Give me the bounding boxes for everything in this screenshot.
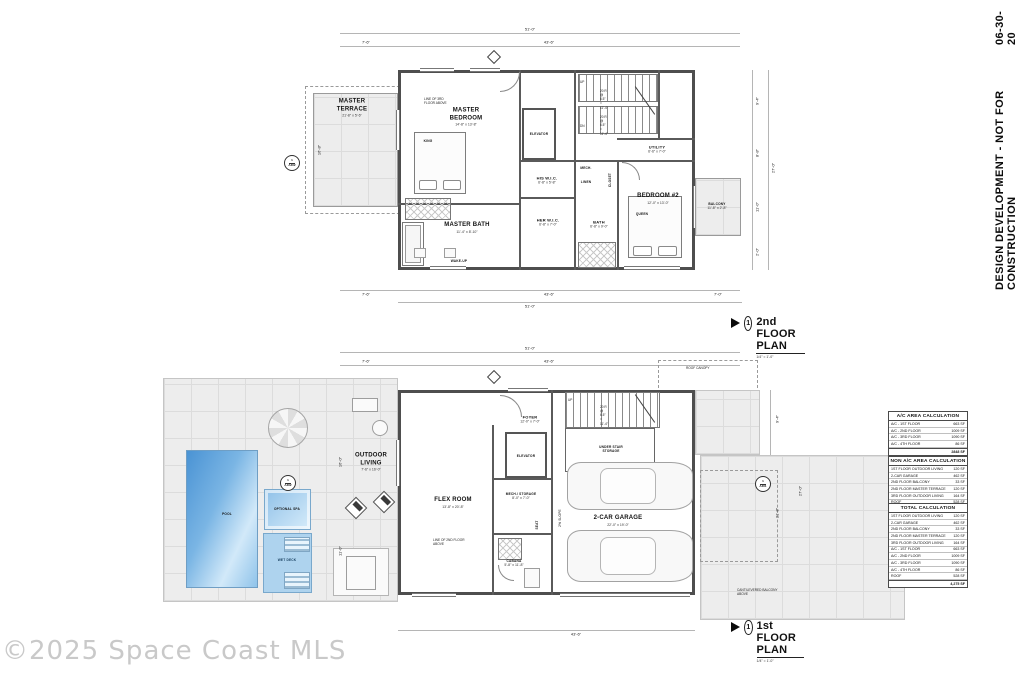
design-development-stamp: DESIGN DEVELOPMENT - NOT FOR CONSTRUCTIO… [994, 8, 1018, 290]
dimension-line [398, 630, 695, 631]
table-row: A/C - 3RD FLOOR1090 SF [889, 434, 967, 441]
detail-number-bubble: 1 [744, 316, 752, 331]
first-floor-plan-title: 1 1st FLOOR PLAN 1/4" = 1'-0" [731, 620, 804, 663]
garage-door [560, 593, 690, 597]
room-label-bath: BATH 6'-8" x 9'-0" [590, 219, 608, 228]
lounge-chair [284, 572, 310, 589]
outdoor-sofa [352, 398, 378, 412]
table-row: A/C - 2ND FLOOR1009 SF [889, 553, 967, 560]
label-king: KING [424, 139, 433, 143]
window [396, 110, 400, 150]
room-label-wet-deck: WET DECK [276, 558, 298, 562]
interior-wall [492, 425, 494, 595]
room-dims: 22'-0" x 19'-0" [594, 523, 643, 527]
table-row: 3RD FLOOR OUTDOOR LIVING164 SF [889, 540, 967, 547]
row-label: 2ND FLOOR BALCONY [891, 480, 930, 484]
stair-run-down [578, 106, 658, 134]
table-title: A/C AREA CALCULATION [889, 412, 967, 421]
interior-wall [574, 160, 576, 270]
interior-wall [617, 138, 695, 140]
room-label-her-wic: HER W.I.C. 6'-8" x 7'-0" [537, 217, 559, 226]
dim-label: 43'-6" [571, 632, 581, 637]
room-dims: 6'-8" x 7'-0" [537, 222, 559, 226]
dimension-line [768, 70, 769, 270]
pillow [658, 246, 677, 256]
stair-riser-note: 20 R @ 6.5" = 11'-4" [600, 405, 608, 426]
row-value: 86 SF [955, 568, 965, 572]
pillow [633, 246, 652, 256]
elevation-marker: 1 A301 [755, 476, 771, 492]
pool [186, 450, 258, 588]
car-cabin [600, 537, 656, 575]
table-title: TOTAL CALCULATION [889, 504, 967, 513]
row-label: A/C - 3RD FLOOR [891, 561, 921, 565]
elevation-marker: 1 A302 [280, 475, 296, 491]
row-value: 663 SF [953, 422, 965, 426]
room-label-pool: POOL [222, 512, 232, 516]
table-row: A/C - 4TH FLOOR86 SF [889, 567, 967, 574]
room-label-mech-storage: MECH./ STORAGE 8'-0" x 7'-0" [504, 492, 538, 500]
second-floor-plan-title: 1 2nd FLOOR PLAN 1/4" = 1'-0" [731, 316, 805, 359]
dim-label: 21'-8" [775, 508, 780, 518]
dim-label: 9'-4" [755, 97, 760, 105]
dim-label: 11'-0" [755, 202, 760, 212]
row-value: 120 SF [953, 514, 965, 518]
table-row: ROOF528 SF [889, 573, 967, 580]
room-label-linen: LINEN [581, 180, 592, 184]
row-value: 663 SF [953, 547, 965, 551]
row-label: 1ST FLOOR OUTDOOR LIVING [891, 514, 943, 518]
marker-sheet: A301 [759, 485, 766, 488]
label-wake-up: WAKE-UP [451, 259, 467, 263]
interior-wall [574, 70, 576, 162]
interior-wall [617, 160, 619, 270]
row-value: 164 SF [953, 541, 965, 545]
table-row: 2ND FLOOR MASTER TERRACE120 SF [889, 533, 967, 540]
table-row: 3RD FLOOR OUTDOOR LIVING164 SF [889, 493, 967, 500]
dimension-line [340, 352, 740, 353]
marker-sheet: A302 [284, 484, 291, 487]
plan-scale-text: 1/4" = 1'-0" [756, 354, 804, 359]
window [624, 266, 680, 270]
row-label: 2ND FLOOR MASTER TERRACE [891, 487, 946, 491]
room-dims: 6'-8" x 5'-8" [537, 180, 558, 184]
table-title: NON A/C AREA CALCULATION [889, 457, 967, 466]
section-arrow-icon [731, 622, 740, 632]
cabana-shower [498, 538, 522, 560]
dining-table [346, 556, 376, 590]
interior-wall [519, 70, 521, 270]
room-dims: 21'-8" x 5'-6" [330, 113, 374, 117]
row-label: A/C - 1ST FLOOR [891, 547, 920, 551]
table-total: 2848 SF [889, 448, 967, 455]
room-label-under-stair: UNDER STAIR STORAGE [593, 445, 629, 453]
window [430, 266, 466, 270]
row-value: 120 SF [953, 534, 965, 538]
room-dims: 11'-8" x 2'-8" [707, 206, 726, 210]
dim-label: 2'-0" [755, 248, 760, 256]
marker-sheet: A302 [288, 164, 295, 167]
note-line-of-3rd-floor: LINE OF 3RD FLOOR ABOVE [424, 97, 452, 105]
room-label-balcony: BALCONY 11'-8" x 2'-8" [707, 202, 726, 210]
row-label: A/C - 2ND FLOOR [891, 429, 921, 433]
room-label-cabana: CABANA 5'-8" x 11'-8" [504, 559, 523, 567]
architectural-sheet: MASTER TERRACE 21'-8" x 5'-6" MASTER BED… [0, 0, 1024, 683]
window [396, 440, 400, 486]
dim-label: 9'-4" [775, 415, 780, 423]
table-row: A/C - 3RD FLOOR1090 SF [889, 560, 967, 567]
plan-title-text: 2nd FLOOR PLAN [756, 316, 804, 354]
row-label: 3RD FLOOR OUTDOOR LIVING [891, 541, 944, 545]
dim-label: 16'-0" [338, 457, 343, 467]
room-name: OUTDOOR LIVING [355, 452, 387, 466]
dim-label: 11'-0" [338, 546, 343, 556]
bath-floor-hatch [578, 242, 616, 268]
dimension-line [752, 70, 753, 270]
dim-label: 8'-8" [755, 149, 760, 157]
stair-riser-note: 20 R @ 6.5" = 11'-4" [600, 89, 608, 110]
row-value: 1009 SF [951, 429, 965, 433]
plan-scale-text: 1/4" = 1'-0" [757, 658, 805, 663]
room-name: MASTER BATH [444, 222, 489, 228]
interior-wall [519, 160, 695, 162]
dim-label: 7'-6" [362, 40, 370, 45]
room-label-master-bedroom: MASTER BEDROOM 14'-8" x 13'-8" [444, 107, 488, 126]
row-value: 1090 SF [951, 561, 965, 565]
dim-label: 27'-0" [771, 163, 776, 173]
row-label: 2ND FLOOR MASTER TERRACE [891, 534, 946, 538]
dim-label: 43'-6" [544, 292, 554, 297]
dimension-line [340, 33, 740, 34]
table-row: A/C - 1ST FLOOR663 SF [889, 547, 967, 554]
table-row: 2ND FLOOR BALCONY33 SF [889, 479, 967, 486]
table-row: 1ST FLOOR OUTDOOR LIVING120 SF [889, 513, 967, 520]
elevation-marker: 1 A302 [284, 155, 300, 171]
row-value: 528 SF [953, 574, 965, 578]
row-label: A/C - 4TH FLOOR [891, 568, 920, 572]
label-roof-canopy: ROOF CANOPY [686, 366, 712, 370]
room-dims: 11'-4" x 8'-10" [444, 230, 489, 234]
room-label-garage: 2-CAR GARAGE 22'-0" x 19'-0" [594, 515, 643, 527]
lounge-chair [284, 537, 310, 552]
dim-label: 43'-6" [544, 40, 554, 45]
watermark: ©2025 Space Coast MLS [2, 636, 346, 666]
window [412, 593, 456, 597]
room-dims: 14'-8" x 13'-8" [444, 122, 488, 126]
window [470, 68, 500, 72]
table-row: A/C - 1ST FLOOR663 SF [889, 421, 967, 428]
room-label-foyer: FOYER 12'-0" x 7'-0" [520, 414, 540, 423]
stair-up-label: UP [580, 80, 584, 84]
row-value: 33 SF [955, 527, 965, 531]
room-label-utility: UTILITY 6'-6" x 7'-0" [648, 144, 666, 153]
table-row: A/C - 4TH FLOOR86 SF [889, 441, 967, 448]
stair-dn-label: DN [580, 124, 585, 128]
room-dims: 12'-0" x 13'-0" [637, 201, 679, 205]
row-label: 2-CAR GARAGE [891, 474, 918, 478]
table-row: A/C - 2ND FLOOR1009 SF [889, 428, 967, 435]
stair-up-label: UP [568, 398, 572, 402]
ac-area-table: A/C AREA CALCULATIONA/C - 1ST FLOOR663 S… [888, 411, 968, 456]
room-dims: 12'-0" x 7'-0" [520, 419, 540, 423]
dim-label: 7'-0" [714, 292, 722, 297]
room-label-master-bath: MASTER BATH 11'-4" x 8'-10" [444, 222, 489, 234]
row-label: A/C - 1ST FLOOR [891, 422, 920, 426]
room-label-elevator: ELEVATOR [517, 454, 535, 458]
table-row: 2-CAR GARAGE462 SF [889, 520, 967, 527]
room-label-outdoor-living: OUTDOOR LIVING 7'-6" x 16'-0" [349, 452, 393, 471]
dimension-line [398, 302, 742, 303]
interior-wall [492, 533, 553, 535]
room-dims: 13'-8" x 20'-8" [434, 505, 471, 509]
row-value: 1009 SF [951, 554, 965, 558]
row-label: 1ST FLOOR OUTDOOR LIVING [891, 467, 943, 471]
row-label: A/C - 2ND FLOOR [891, 554, 921, 558]
bathtub [402, 222, 424, 266]
room-label-master-terrace: MASTER TERRACE 21'-8" x 5'-6" [330, 98, 374, 117]
room-name: MASTER TERRACE [337, 98, 367, 112]
plan-title-text: 1st FLOOR PLAN [757, 620, 805, 658]
stamp-text: DESIGN DEVELOPMENT - NOT FOR CONSTRUCTIO… [994, 59, 1018, 290]
row-value: 1090 SF [951, 435, 965, 439]
keynote-diamond [487, 370, 501, 384]
dim-label: 51'-0" [525, 27, 535, 32]
table-row: 2ND FLOOR MASTER TERRACE120 SF [889, 486, 967, 493]
dimension-line [340, 46, 740, 47]
interior-wall [658, 70, 660, 140]
outdoor-table [372, 420, 388, 436]
dim-label: 51'-0" [525, 304, 535, 309]
row-value: 164 SF [953, 494, 965, 498]
interior-wall [551, 390, 553, 595]
section-arrow-icon [731, 318, 740, 328]
room-dims: 6'-8" x 9'-0" [590, 224, 608, 228]
dim-label: 7'-6" [362, 359, 370, 364]
room-name: FLEX ROOM [434, 497, 471, 503]
room-label-flex-room: FLEX ROOM 13'-8" x 20'-8" [434, 497, 471, 509]
side-apron [695, 390, 760, 455]
dim-label: 27'-0" [798, 486, 803, 496]
row-label: ROOF [891, 574, 901, 578]
table-row: 2-CAR GARAGE462 SF [889, 473, 967, 480]
row-value: 86 SF [955, 442, 965, 446]
entry-door-opening [508, 388, 548, 392]
table-row: 1ST FLOOR OUTDOOR LIVING120 SF [889, 466, 967, 473]
detail-number-bubble: 1 [744, 620, 753, 635]
table-total: 4,275 SF [889, 580, 967, 587]
row-value: 33 SF [955, 480, 965, 484]
row-value: 462 SF [953, 474, 965, 478]
umbrella [268, 408, 308, 448]
room-label-mech: MECH. [580, 166, 591, 170]
label-queen: QUEEN [636, 212, 648, 216]
room-name: 2-CAR GARAGE [594, 515, 643, 521]
room-dims: 5'-8" x 11'-8" [504, 563, 523, 567]
room-label-closet: CLOSET [608, 173, 612, 187]
room-name: BEDROOM #2 [637, 193, 679, 199]
stamp-date: 06-30-20 [994, 8, 1018, 45]
total-calculation-table: TOTAL CALCULATION1ST FLOOR OUTDOOR LIVIN… [888, 503, 968, 588]
dim-label: 51'-0" [525, 346, 535, 351]
label-seat: SEAT [535, 520, 539, 529]
label-slope: 2% SLOPE [558, 509, 562, 527]
window [420, 68, 454, 72]
vanity-sink [414, 248, 426, 258]
row-label: A/C - 3RD FLOOR [891, 435, 921, 439]
label-cantilevered-balcony: CANTILEVERED BALCONY ABOVE [737, 588, 781, 596]
room-label-optional-spa: OPTIONAL SPA [272, 507, 302, 511]
table-row: 2ND FLOOR BALCONY33 SF [889, 526, 967, 533]
row-label: 2ND FLOOR BALCONY [891, 527, 930, 531]
row-value: 120 SF [953, 467, 965, 471]
room-label-his-wic: HIS W.I.C. 6'-8" x 5'-8" [537, 175, 558, 184]
note-line-of-2nd-floor: LINE OF 2ND FLOOR ABOVE [433, 538, 467, 546]
dim-label: 7'-6" [362, 292, 370, 297]
room-name: MASTER BEDROOM [450, 107, 483, 121]
room-dims: 7'-6" x 16'-0" [349, 467, 393, 471]
room-label-bedroom2: BEDROOM #2 12'-0" x 13'-0" [637, 193, 679, 205]
cabana-wc [524, 568, 540, 588]
dim-label: 43'-6" [544, 359, 554, 364]
room-dims: 6'-6" x 7'-0" [648, 149, 666, 153]
row-value: 120 SF [953, 487, 965, 491]
room-dims: 8'-0" x 7'-0" [504, 496, 538, 500]
row-label: A/C - 4TH FLOOR [891, 442, 920, 446]
pillow [419, 180, 437, 190]
interior-wall [492, 478, 553, 480]
car-cabin [600, 468, 656, 504]
stair-run-up [578, 74, 658, 102]
dimension-line [340, 290, 740, 291]
keynote-diamond [487, 50, 501, 64]
interior-wall [519, 197, 576, 199]
row-value: 462 SF [953, 521, 965, 525]
room-label-elevator: ELEVATOR [530, 132, 548, 136]
stair-riser-note: 20 R @ 6.5" = 11'-4" [600, 115, 608, 136]
vanity-sink [444, 248, 456, 258]
pillow [443, 180, 461, 190]
shower-hatch [405, 198, 451, 220]
dim-label: 16'-8" [317, 145, 322, 155]
row-label: 2-CAR GARAGE [891, 521, 918, 525]
row-label: 3RD FLOOR OUTDOOR LIVING [891, 494, 944, 498]
